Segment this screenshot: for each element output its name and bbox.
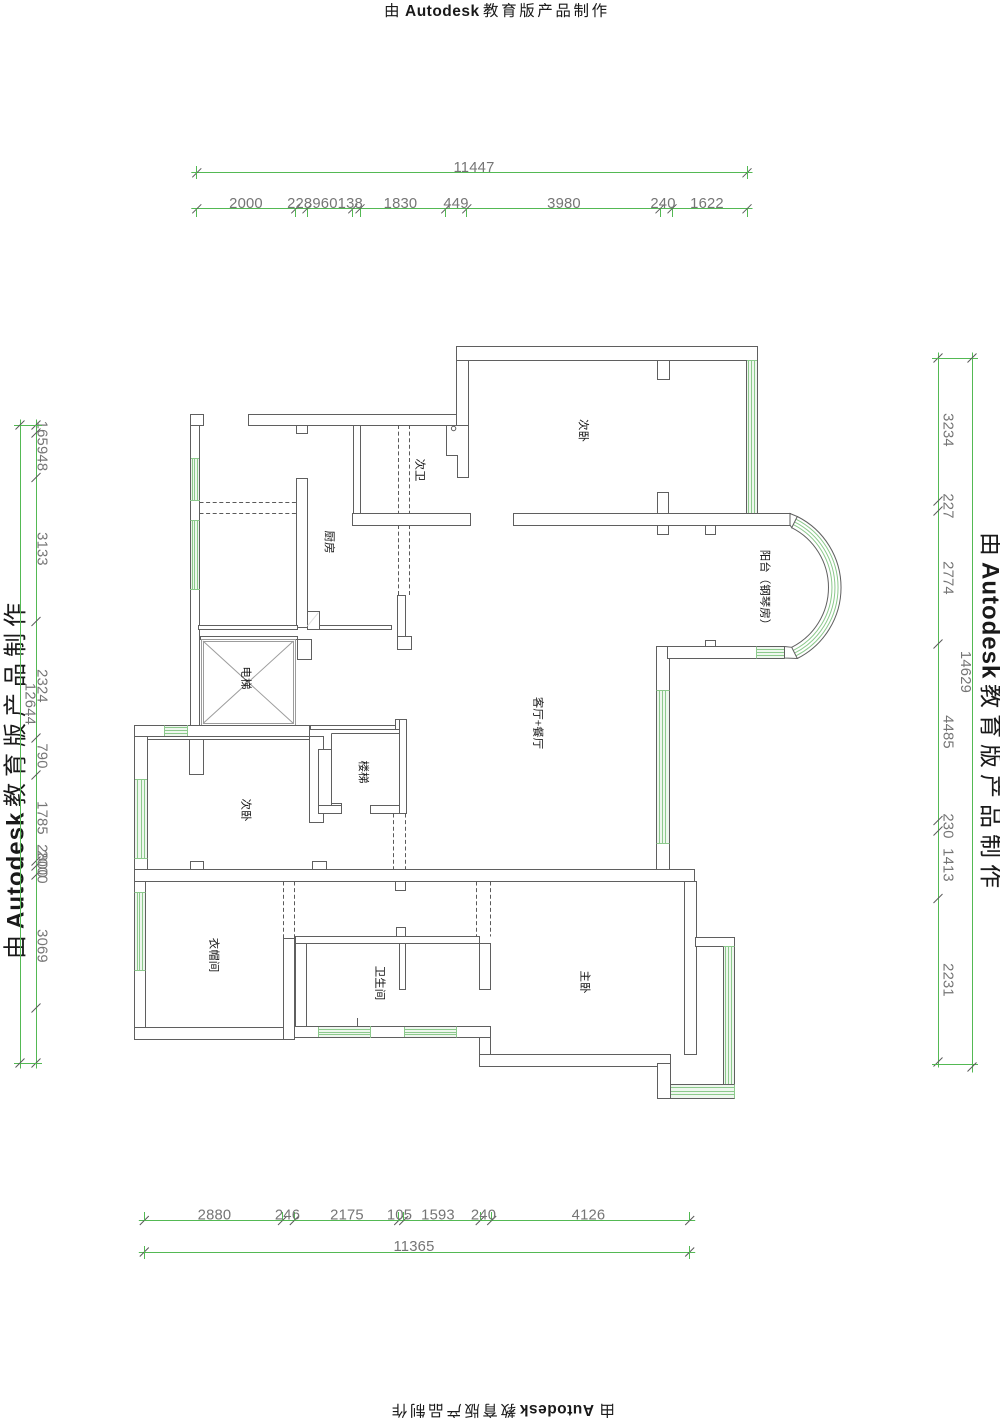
svg-text:2231: 2231 — [940, 963, 956, 997]
svg-text:2774: 2774 — [940, 561, 956, 595]
svg-text:3133: 3133 — [34, 532, 50, 566]
svg-text:14629: 14629 — [957, 651, 973, 693]
svg-text:246: 246 — [275, 1208, 300, 1224]
svg-text:2880: 2880 — [198, 1208, 232, 1224]
svg-text:3234: 3234 — [940, 413, 956, 447]
svg-text:230: 230 — [940, 813, 956, 838]
svg-text:240: 240 — [650, 196, 675, 212]
svg-text:228960138: 228960138 — [287, 196, 363, 212]
svg-text:165948: 165948 — [34, 421, 50, 472]
svg-text:1830: 1830 — [384, 196, 418, 212]
svg-text:4126: 4126 — [572, 1208, 606, 1224]
svg-text:240: 240 — [471, 1208, 496, 1224]
svg-text:790: 790 — [34, 743, 50, 768]
svg-text:2000: 2000 — [229, 196, 263, 212]
svg-text:3069: 3069 — [34, 929, 50, 963]
svg-text:12644: 12644 — [22, 683, 38, 725]
svg-text:Autodesk: Autodesk — [977, 562, 1000, 679]
svg-text:Autodesk: Autodesk — [519, 1401, 594, 1418]
svg-text:11447: 11447 — [453, 160, 494, 176]
svg-text:1593: 1593 — [421, 1208, 455, 1224]
svg-text:227: 227 — [940, 493, 956, 518]
svg-text:2175: 2175 — [330, 1208, 364, 1224]
svg-text:1622: 1622 — [690, 196, 724, 212]
svg-text:2000: 2000 — [34, 850, 50, 884]
svg-text:1413: 1413 — [940, 848, 956, 882]
svg-text:Autodesk: Autodesk — [405, 3, 480, 20]
svg-text:4485: 4485 — [940, 715, 956, 749]
svg-text:105: 105 — [387, 1208, 412, 1224]
svg-text:1785: 1785 — [34, 801, 50, 835]
svg-text:3980: 3980 — [547, 196, 581, 212]
svg-text:449: 449 — [443, 196, 468, 212]
svg-text:Autodesk: Autodesk — [3, 812, 30, 929]
svg-text:11365: 11365 — [393, 1239, 434, 1255]
